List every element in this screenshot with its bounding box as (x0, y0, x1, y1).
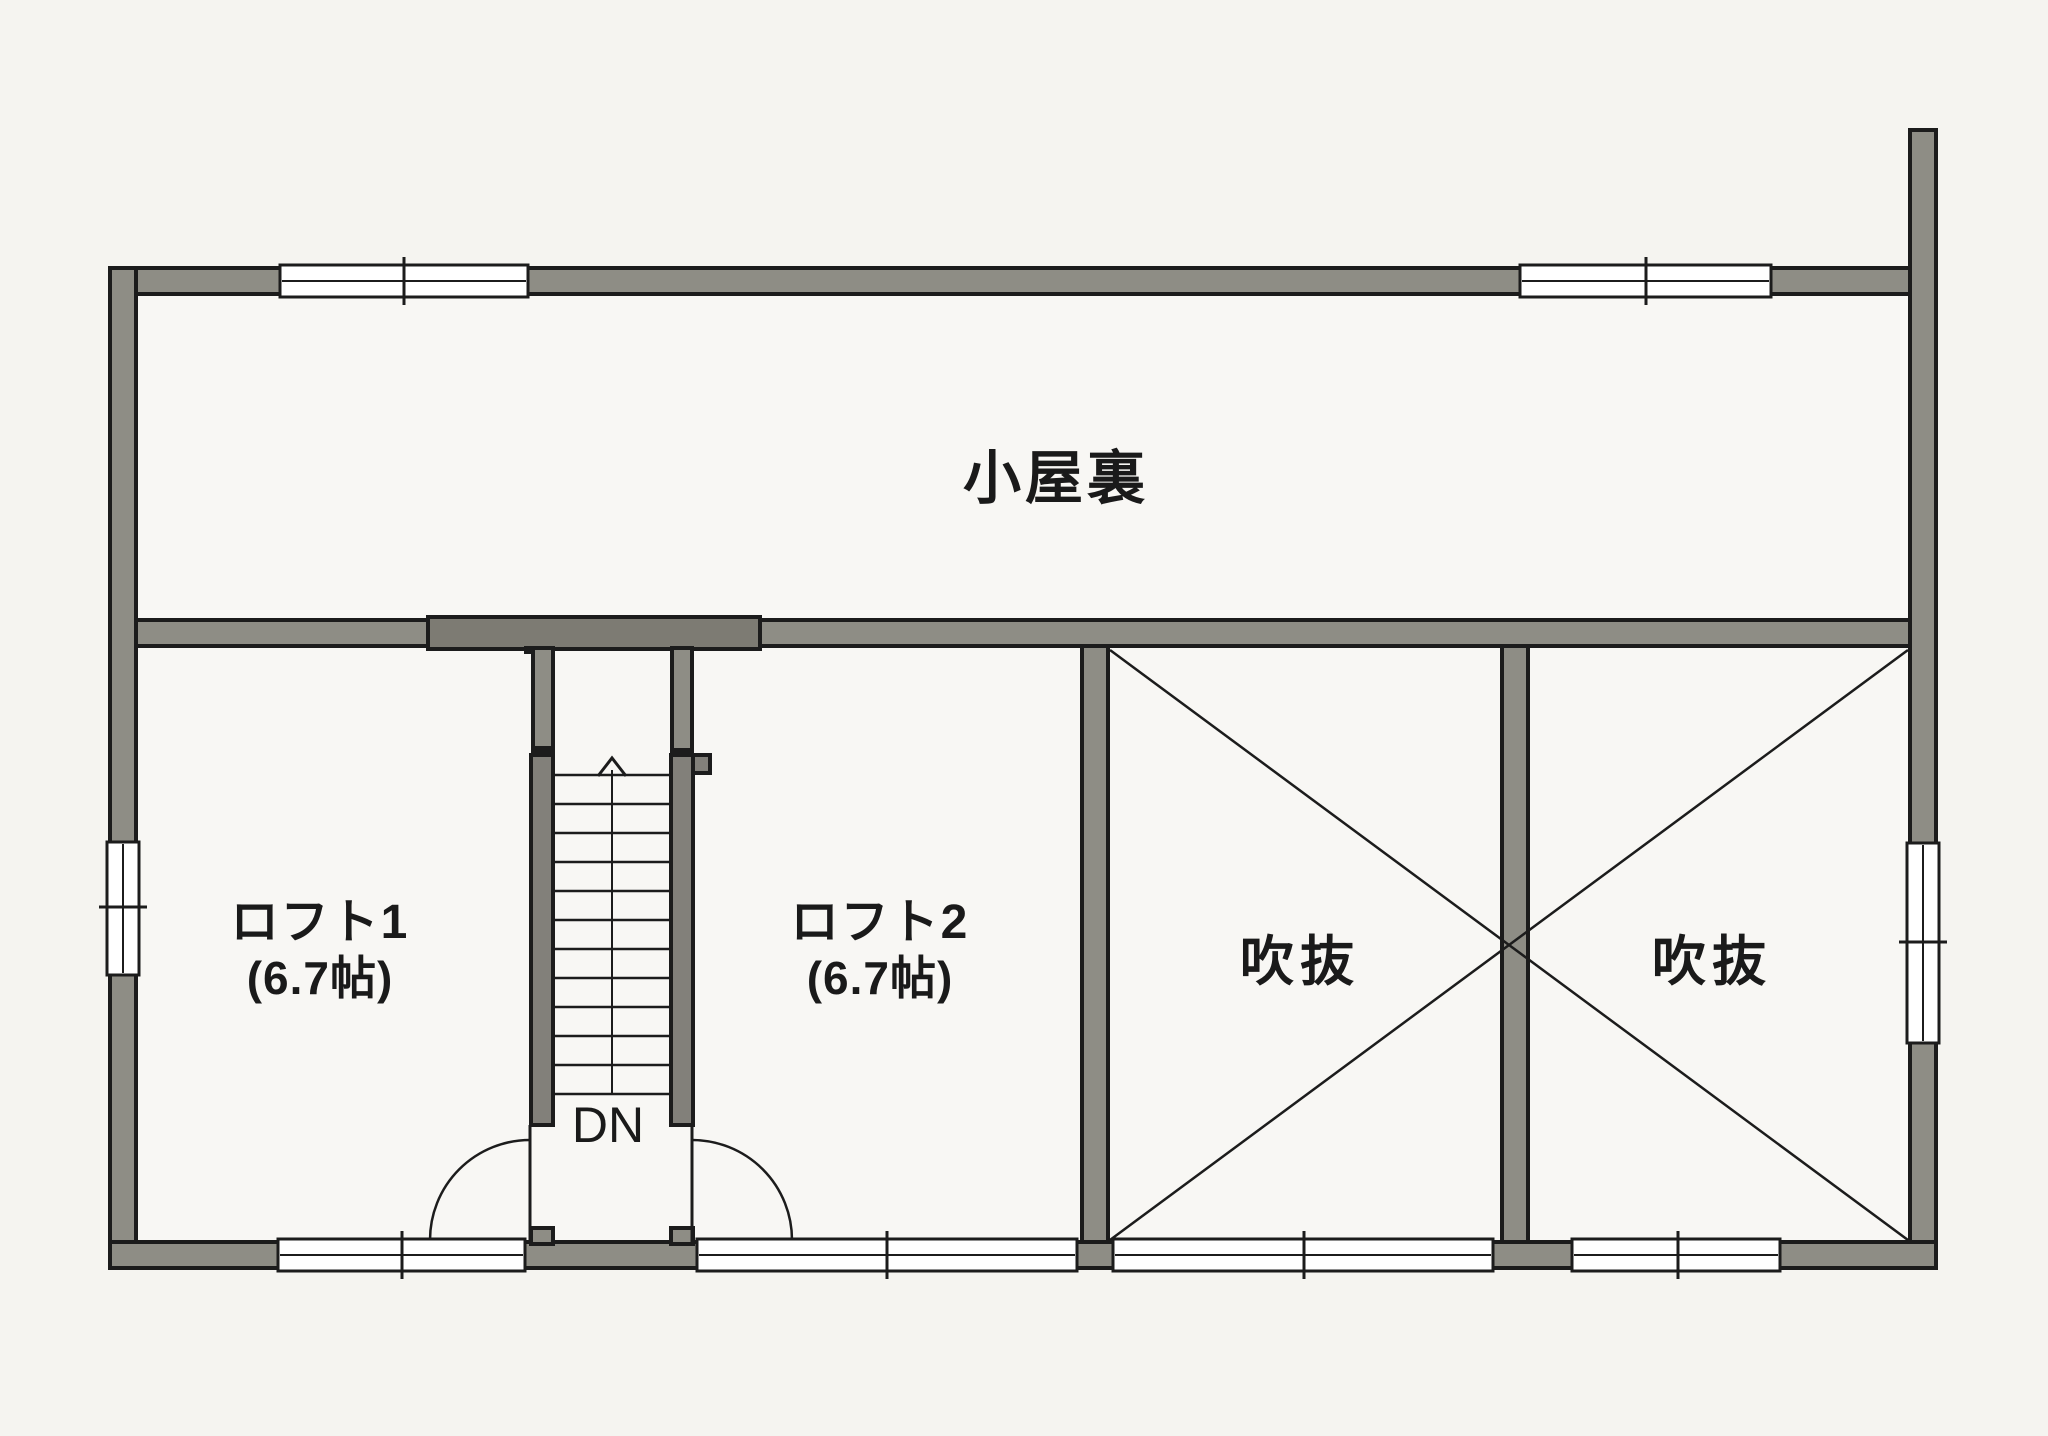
window-top-left (280, 257, 528, 305)
stair-wall-tab (693, 755, 710, 773)
window-bottom-loft1 (278, 1231, 525, 1279)
label-void1: 吹抜 (1240, 932, 1360, 992)
stairwell-stub-wall-left (533, 648, 553, 748)
window-bottom-void1 (1113, 1231, 1493, 1279)
label-attic: 小屋裏 (963, 446, 1149, 511)
label-loft1-size: (6.7帖) (247, 952, 394, 1004)
floor-area (136, 294, 1910, 1242)
wall-loft2-void1 (1082, 646, 1108, 1242)
stub-wall-tick-left (524, 646, 534, 654)
window-right-wall (1899, 843, 1947, 1043)
attic-divider-wall (110, 620, 1936, 646)
window-bottom-loft2 (697, 1231, 1077, 1279)
stair-wall-right (671, 755, 693, 1125)
label-loft1: ロフト1 (231, 896, 410, 949)
window-bottom-void2 (1572, 1231, 1780, 1279)
window-top-right (1520, 257, 1771, 305)
stair-opening-beam (428, 617, 760, 649)
stub-wall-cap-left (531, 746, 555, 754)
outer-wall-left (110, 268, 136, 1268)
label-void2: 吹抜 (1652, 932, 1772, 992)
door-tab-left (531, 1228, 553, 1244)
window-left-wall (99, 842, 147, 975)
label-stairs-dn: DN (572, 1097, 644, 1153)
door-tab-right (671, 1228, 693, 1244)
stair-wall-left (531, 755, 553, 1125)
stairwell-stub-wall-right (672, 648, 692, 750)
label-loft2: ロフト2 (791, 896, 970, 949)
floor-plan-page: 小屋裏 ロフト1 (6.7帖) ロフト2 (6.7帖) 吹抜 吹抜 DN (0, 0, 2048, 1436)
outer-wall-right (1910, 130, 1936, 1268)
floor-plan-drawing: 小屋裏 ロフト1 (6.7帖) ロフト2 (6.7帖) 吹抜 吹抜 DN (0, 0, 2048, 1436)
label-loft2-size: (6.7帖) (807, 952, 954, 1004)
